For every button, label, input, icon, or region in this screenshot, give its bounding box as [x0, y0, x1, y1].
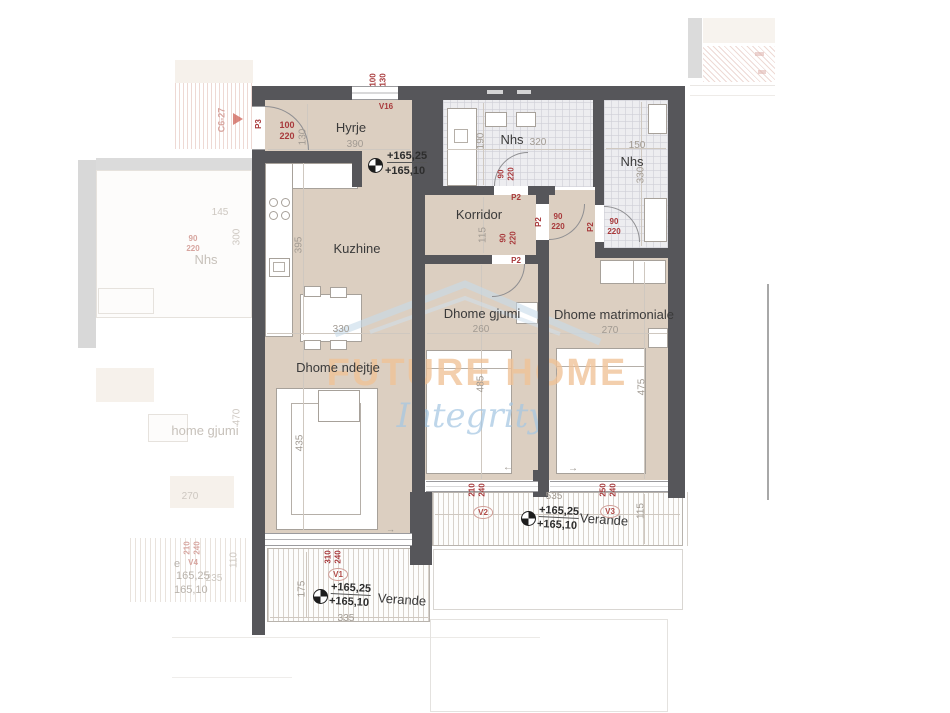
window-size-v1: 310 240	[323, 550, 342, 563]
dim-veranda-left-height: 175	[297, 581, 308, 598]
neighbor-wall-topright	[688, 18, 702, 78]
kitchen-sink	[269, 258, 290, 277]
wall-gjumi-matrimoniale	[538, 258, 549, 492]
room-label-nhs-top: Nhs	[500, 132, 523, 147]
wall-left	[252, 86, 265, 635]
room-label-dhome-matrimoniale: Dhome matrimoniale	[554, 307, 674, 322]
neighbor-room-gjumi-label: home gjumi	[171, 423, 238, 438]
slide-arrow-matrimoniale-icon: →	[568, 463, 578, 474]
wall-gjumi-left	[412, 187, 425, 492]
floor-plan: C6-27 145 300 90 220 Nhs home gjumi 470 …	[0, 0, 950, 713]
neighbor-veranda-label-fragment: e	[174, 558, 180, 570]
toilet-nhs-top	[516, 112, 536, 127]
elevation-lower-veranda-left: +165,10	[329, 595, 370, 609]
neighbor-hatch-topright	[703, 46, 775, 82]
slide-arrow-living-icon: →	[386, 524, 395, 534]
window-size-v16: 100 130	[368, 73, 387, 86]
dim-line-nhs-top	[447, 149, 591, 150]
kitchen-counter-left	[265, 163, 293, 337]
neighbor-floor-2	[170, 476, 234, 508]
dim-hyrje-height: 130	[298, 129, 309, 146]
veranda-right-outer-line	[687, 492, 688, 546]
neighbor-door-size: 90 220	[186, 234, 199, 253]
door-label-p2-korridor: P2	[534, 217, 544, 227]
elevation-lower-hyrje: +165,10	[385, 165, 425, 177]
neighbor-window-v4: V4	[188, 558, 198, 568]
room-label-dhome-ndejtje: Dhome ndejtje	[296, 360, 380, 375]
neighbor-cabinet-1	[98, 288, 154, 314]
wall-korridor-a	[536, 187, 549, 204]
wall-right	[668, 86, 685, 498]
neighbor-strip-topleft	[175, 60, 253, 83]
toilet-nhs-right	[644, 198, 667, 242]
window-v16	[352, 86, 398, 100]
sink-nhs-top	[485, 112, 507, 127]
room-label-korridor: Korridor	[456, 207, 502, 222]
shower-nhs-top	[447, 108, 477, 186]
dim-line-matrimoniale-v	[644, 262, 645, 479]
dim-hyrje-width: 390	[347, 139, 364, 150]
elevation-lower-veranda-right: +165,10	[537, 518, 578, 532]
neighbor-line-topright-1	[690, 85, 775, 86]
neighbor-dim-veranda-height: 110	[229, 552, 240, 568]
wall-hyrje-kuzhine-cap	[352, 151, 362, 187]
dim-nhs-top-width: 320	[530, 137, 547, 148]
neighbor-section-arrow-icon	[233, 113, 243, 125]
dim-nhs-right-width: 150	[629, 140, 646, 151]
neighbor-room-nhs-label: Nhs	[194, 252, 217, 267]
door-label-p2-nhs-right: P2	[586, 222, 596, 232]
neighbor-dim-gjumi-height: 470	[232, 409, 243, 426]
floor-korridor	[425, 195, 549, 255]
door-label-p3: P3	[254, 119, 264, 129]
elevation-upper-hyrje: +165,25	[387, 150, 427, 163]
door-label-p2-nhs-top: P2	[511, 193, 521, 203]
dim-matrimoniale-height: 475	[637, 379, 648, 396]
dim-gjumi-height: 485	[476, 376, 487, 393]
wall-stub-living	[410, 492, 432, 565]
neighbor-wall-horizontal	[96, 158, 252, 170]
room-label-hyrje: Hyrje	[336, 120, 366, 135]
dim-matrimoniale-width: 270	[602, 325, 619, 336]
dim-table-width: 330	[333, 324, 350, 335]
room-label-kuzhine: Kuzhine	[334, 241, 381, 256]
window-size-v3: 250 240	[598, 483, 617, 496]
elevation-upper-veranda-right: +165,25	[539, 504, 580, 519]
neighbor-section-label: C6-27	[217, 108, 228, 133]
neighbor-dim-gjumi-width: 270	[182, 491, 199, 502]
dim-veranda-right-height: 115	[636, 503, 647, 519]
door-size-p2-korridor: 90 220	[551, 212, 564, 231]
neighbor-elevation-upper: 165,25	[176, 570, 210, 582]
wall-top	[252, 86, 685, 100]
neighbor-veranda-door-size: 210 240	[182, 541, 201, 554]
neighbor-wall-vertical	[78, 160, 96, 348]
dim-line-korridor-v	[483, 197, 484, 253]
neighbor-floor-topright	[703, 18, 775, 43]
window-label-v1: V1	[328, 568, 348, 581]
window-label-v16: V16	[379, 102, 393, 112]
elevation-symbol-veranda-left	[313, 589, 328, 604]
neighbor-dim-nhs-height: 300	[232, 229, 243, 246]
dim-sofa-height: 435	[295, 435, 306, 452]
neighbor-line-topright-2	[690, 95, 775, 96]
dim-nhs-right-height: 330	[636, 167, 647, 184]
window-label-v2: V2	[473, 506, 493, 519]
elevation-symbol-hyrje	[368, 158, 383, 173]
door-size-p2-nhs-right: 90 220	[607, 217, 620, 236]
dim-nhs-top-height: 190	[476, 133, 487, 150]
dim-veranda-right-width: 535	[546, 491, 563, 502]
dim-veranda-left-width: 335	[338, 613, 355, 624]
wall-nhs-divider	[593, 99, 604, 187]
dim-kuzhine-height: 395	[294, 237, 305, 254]
door-opening-nhs-right	[595, 205, 604, 242]
neighbor-dim-nhs-width: 145	[212, 207, 229, 218]
neighbor-mark-1	[755, 52, 764, 56]
neighbor-mark-2	[758, 70, 766, 74]
nightstand-matrimoniale	[648, 328, 668, 348]
wall-vent-1	[487, 90, 503, 94]
wall-nhs-right-bottom	[595, 248, 668, 258]
elevation-symbol-veranda-right	[521, 511, 536, 526]
site-line-2	[172, 677, 292, 678]
slide-arrow-gjumi-icon: ←	[503, 462, 513, 473]
wall-hyrje-kuzhine	[265, 151, 360, 163]
wall-vent-2	[517, 90, 531, 94]
neighbor-dim-veranda-width: 235	[206, 573, 223, 584]
neighbor-floor-1	[96, 368, 154, 402]
balcony-slab-outline-1	[433, 549, 683, 610]
balcony-slab-outline-2	[430, 619, 668, 712]
cabinet-nhs-right	[648, 104, 667, 134]
door-label-p2-gjumi: P2	[511, 256, 521, 266]
door-size-p3: 100 220	[279, 120, 294, 142]
dim-korridor-width: 115	[478, 227, 489, 243]
window-label-v3: V3	[600, 505, 620, 518]
site-boundary-line	[767, 284, 769, 500]
dim-line-veranda-right-v	[644, 494, 645, 544]
dim-gjumi-width: 260	[473, 324, 490, 335]
window-size-v2: 210 240	[467, 483, 486, 496]
balcony-door-living	[265, 533, 412, 546]
elevation-upper-veranda-left: +165,25	[331, 581, 372, 596]
stove-icon	[267, 196, 293, 224]
door-size-p2-nhs-top: 90 220	[496, 167, 515, 180]
neighbor-elevation-lower: 165,10	[174, 584, 208, 596]
room-label-dhome-gjumi: Dhome gjumi	[444, 306, 521, 321]
door-size-p2-gjumi: 90 220	[498, 231, 517, 244]
wall-nhs-right-left-a	[595, 187, 604, 205]
